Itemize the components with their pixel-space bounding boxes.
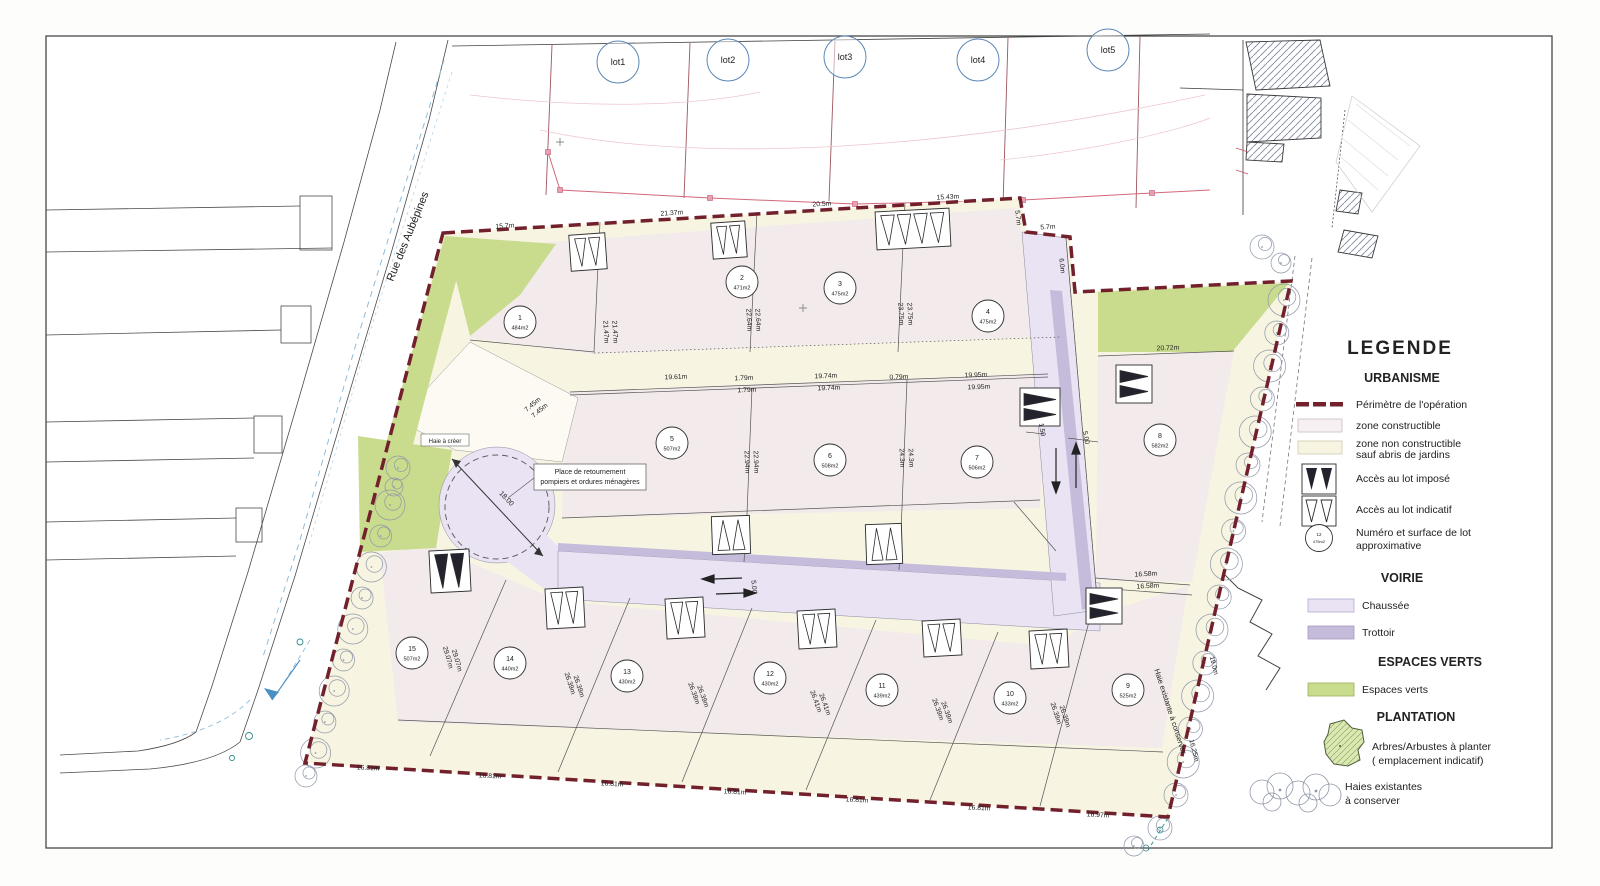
access-imposed-icon — [1086, 588, 1122, 624]
lot-marker: 13430m2 — [611, 660, 643, 692]
dimension-label: 16.58m — [1136, 582, 1159, 590]
lot-marker: 2471m2 — [726, 266, 758, 298]
lot-number: 14 — [506, 656, 514, 663]
dimension-label: 16.81m — [601, 780, 624, 788]
svg-text:Accès au lot imposé: Accès au lot imposé — [1356, 473, 1450, 485]
dimension-label: 19.74m — [814, 373, 837, 381]
lot-area: 475m2 — [979, 320, 996, 326]
dimension-label: 1.79m — [734, 375, 753, 383]
dimension-label: 19.74m — [817, 385, 840, 393]
svg-text:Numéro et surface de lot: Numéro et surface de lot — [1356, 527, 1471, 539]
lot-area: 430m2 — [761, 682, 778, 688]
access-imposed-icon — [429, 549, 471, 593]
dimension-label: 22.64m — [744, 308, 752, 331]
dimension-label: 19.95m — [964, 372, 987, 380]
lot-number: 6 — [828, 453, 832, 460]
lot-area: 507m2 — [663, 447, 680, 453]
lot-area: 508m2 — [821, 464, 838, 470]
existing-lot-marker: lot5 — [1087, 29, 1129, 71]
lot-number: 13 — [623, 669, 631, 676]
lot-area: 525m2 — [1119, 694, 1136, 700]
lot-area: 507m2 — [403, 657, 420, 663]
lot-number: 11 — [878, 683, 885, 690]
dimension-label: 20.72m — [1156, 345, 1179, 353]
existing-lot-label: lot3 — [838, 52, 853, 62]
green-wedge-west — [358, 436, 452, 552]
lot-marker: 14440m2 — [494, 647, 526, 679]
legend-heading-plantation: PLANTATION — [1377, 710, 1456, 724]
dimension-label: 16.81m — [357, 764, 380, 772]
lot-number: 9 — [1126, 683, 1130, 690]
access-indicative-icon — [922, 619, 962, 657]
haie-a-creer-text: Haie à créer — [429, 439, 462, 445]
dimension-label: 16.81m — [724, 788, 747, 796]
lot-marker: 11439m2 — [866, 674, 898, 706]
svg-text:Périmètre de l'opération: Périmètre de l'opération — [1356, 399, 1467, 411]
dimension-label: 16.81m — [846, 796, 869, 804]
legend-title: LEGENDE — [1347, 338, 1453, 359]
dimension-label: 21.47m — [601, 320, 609, 343]
lot-area: 440m2 — [501, 667, 518, 673]
access-indicative-icon — [569, 233, 607, 271]
lot-marker: 12430m2 — [754, 662, 786, 694]
dimension-label: 0.79m — [889, 374, 908, 382]
haie-a-creer-label: Haie à créer — [421, 434, 469, 446]
lot-number: 7 — [975, 455, 979, 462]
dimension-label: 23.75m — [896, 302, 904, 325]
lot-number: 12 — [766, 671, 774, 678]
dimension-label: 22.94m — [743, 450, 751, 473]
dimension-label: 15.7m — [495, 222, 515, 230]
lot-area: 439m2 — [873, 694, 890, 700]
svg-text:Trottoir: Trottoir — [1362, 627, 1395, 639]
existing-lot-marker: lot3 — [824, 36, 866, 78]
lot-marker: 15507m2 — [396, 637, 428, 669]
lot-number: 5 — [670, 436, 674, 443]
lot-marker: 5507m2 — [656, 427, 688, 459]
existing-lot-label: lot5 — [1101, 45, 1116, 55]
dimension-label: 16.58m — [1134, 570, 1157, 578]
lot-number: 15 — [408, 646, 416, 653]
access-indicative-icon — [711, 515, 750, 554]
existing-lot-marker: lot1 — [597, 41, 639, 83]
svg-text:( emplacement indicatif): ( emplacement indicatif) — [1372, 755, 1483, 767]
existing-lot-marker: lot2 — [707, 39, 749, 81]
dimension-label: 19.95m — [967, 384, 990, 392]
svg-text:475m2: 475m2 — [1313, 539, 1326, 544]
lot-marker: 8582m2 — [1144, 424, 1176, 456]
scanned-site-plan: Rue des Aubépines Haie à créer Place de … — [0, 0, 1600, 886]
svg-text:sauf abris de jardins: sauf abris de jardins — [1356, 449, 1450, 461]
dimension-label: 24.3m — [907, 448, 915, 467]
dimension-label: 16.81m — [479, 772, 502, 780]
lot-area: 475m2 — [831, 292, 848, 298]
dimension-label: 19.61m — [664, 374, 687, 382]
access-indicative-icon — [711, 221, 747, 259]
lot-marker: 1484m2 — [504, 306, 536, 338]
access-indicative-icon — [665, 597, 705, 639]
dimension-label: 5.7m — [1040, 223, 1056, 231]
access-imposed-icon — [1020, 388, 1060, 426]
svg-text:Arbres/Arbustes à planter: Arbres/Arbustes à planter — [1372, 741, 1492, 753]
dimension-label: 21.47m — [610, 320, 618, 343]
legend-heading-urbanisme: URBANISME — [1364, 371, 1440, 385]
dimension-label: 20.5m — [812, 200, 832, 208]
lot-marker: 10433m2 — [994, 682, 1026, 714]
lot-number: 3 — [838, 281, 842, 288]
dimension-label: 1.79m — [737, 387, 756, 395]
existing-lot-marker: lot4 — [957, 39, 999, 81]
svg-text:approximative: approximative — [1356, 540, 1422, 552]
lot-marker: 4475m2 — [972, 300, 1004, 332]
existing-lot-label: lot4 — [971, 55, 986, 65]
site-plan-svg: Rue des Aubépines Haie à créer Place de … — [0, 0, 1600, 886]
lot-number: 4 — [986, 309, 990, 316]
dimension-label: 5.00 — [749, 580, 757, 594]
legend-item-espaces-verts: Espaces verts — [1308, 683, 1428, 696]
access-imposed-icon — [1116, 365, 1152, 403]
lot-number: 2 — [740, 275, 744, 282]
access-indicative-icon — [865, 523, 902, 564]
place-line1: Place de retournement — [555, 469, 626, 476]
lot-number: 10 — [1006, 691, 1014, 698]
svg-text:Haies existantes: Haies existantes — [1345, 781, 1422, 793]
lot-area: 506m2 — [968, 466, 985, 472]
dimension-label: 15.43m — [936, 193, 959, 201]
lot-area: 471m2 — [733, 286, 750, 292]
lot-area: 484m2 — [511, 326, 528, 332]
lot-area: 430m2 — [618, 680, 635, 686]
existing-lot-label: lot1 — [611, 57, 626, 67]
existing-lot-label: lot2 — [721, 55, 736, 65]
dimension-label: 24.3m — [898, 448, 906, 467]
lot-marker: 9525m2 — [1112, 674, 1144, 706]
lot-area: 582m2 — [1151, 444, 1168, 450]
place-line2: pompiers et ordures ménagères — [540, 479, 640, 486]
access-indicative-icon — [797, 609, 837, 649]
lot-number: 8 — [1158, 433, 1162, 440]
lot-marker: 3475m2 — [824, 272, 856, 304]
lot-number: 1 — [518, 315, 522, 322]
dimension-label: 22.94m — [752, 450, 760, 473]
lot-marker: 7506m2 — [961, 446, 993, 478]
dimension-label: 22.64m — [753, 308, 761, 331]
svg-text:à conserver: à conserver — [1345, 795, 1400, 807]
dimension-label: 16.81m — [968, 804, 991, 812]
lot-marker: 6508m2 — [814, 444, 846, 476]
access-indicative-icon — [545, 587, 585, 629]
dimension-label: 23.75m — [905, 302, 913, 325]
access-indicative-icon — [1029, 629, 1069, 669]
legend-item-trottoir: Trottoir — [1308, 626, 1395, 639]
legend-item-zone-constructible: zone constructible — [1298, 419, 1441, 432]
svg-text:Chaussée: Chaussée — [1362, 600, 1409, 612]
svg-text:12: 12 — [1316, 532, 1322, 537]
access-indicative-icon — [875, 208, 951, 250]
legend-heading-voirie: VOIRIE — [1381, 571, 1423, 585]
lot-area: 433m2 — [1001, 702, 1018, 708]
svg-text:Accès au lot indicatif: Accès au lot indicatif — [1356, 504, 1452, 516]
dimension-label: 16.97m — [1087, 811, 1110, 819]
svg-text:zone constructible: zone constructible — [1356, 420, 1441, 432]
legend-heading-espaces-verts: ESPACES VERTS — [1378, 655, 1482, 669]
svg-text:Espaces verts: Espaces verts — [1362, 684, 1428, 696]
